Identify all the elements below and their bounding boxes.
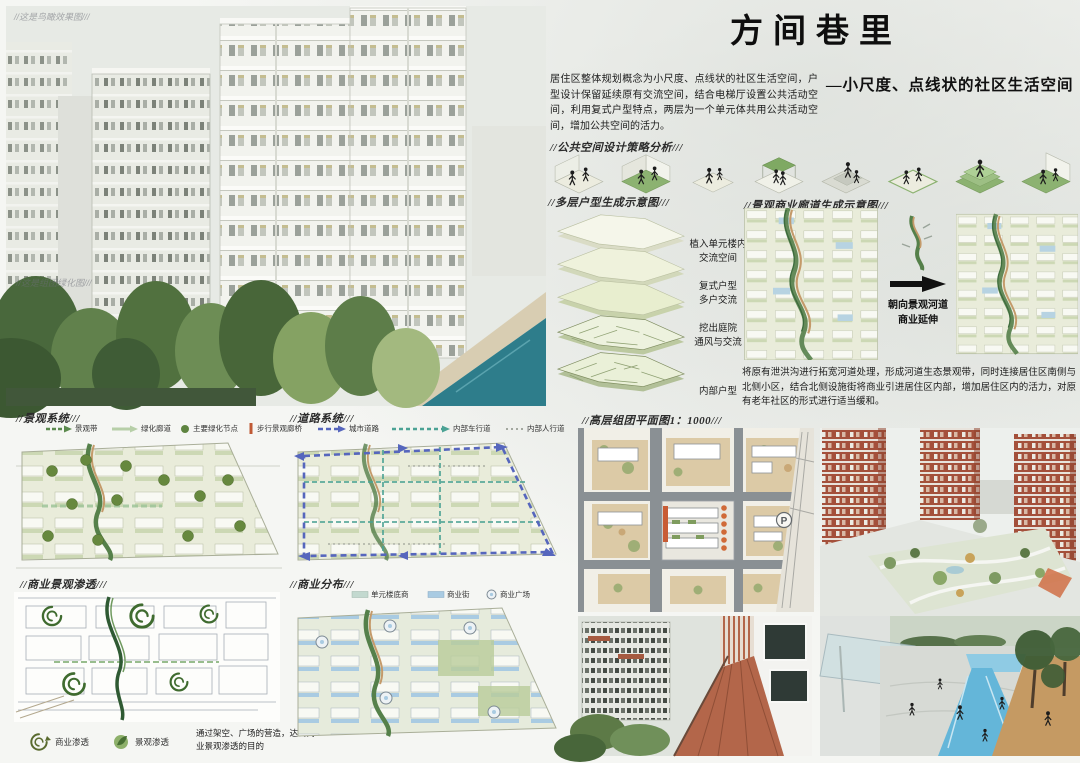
- landscape-bridge-icon: [248, 423, 254, 434]
- landscape-infiltration-icon: [112, 733, 132, 751]
- legend-internal-vehicle-road: 内部车行道: [392, 423, 491, 434]
- hero-render: [6, 6, 546, 406]
- legend-city-road: 城市道路: [318, 423, 379, 434]
- strategy-green-roof-pavilion-icon: [748, 150, 811, 192]
- strategy-walkway-icon: [682, 150, 745, 192]
- commercial-distribution-plan: [288, 600, 568, 750]
- section-header-infiltration: //商业景观渗透///: [20, 576, 107, 592]
- corridor-plan-before: [742, 208, 880, 360]
- highrise-cluster-plan: P: [578, 428, 814, 612]
- corridor-note-text: 朝向景观河道商业延伸: [888, 298, 948, 328]
- parking-symbol: P: [781, 516, 788, 527]
- water-channel-render: [820, 616, 1080, 756]
- commercial-plaza-icon: [486, 589, 497, 600]
- green-node-icon: [180, 424, 190, 434]
- internal-vehicle-road-icon: [392, 425, 450, 433]
- road-system-plan: [288, 436, 570, 574]
- unit-label-2: 复式户型多户交流: [688, 280, 748, 309]
- presentation-board: //这是鸟瞰效果图/// //这是组团绿化图/// 方间巷里 居住区整体规划概念…: [0, 0, 1080, 763]
- legend-landscape-bridge: 步行景观廊桥: [248, 423, 302, 434]
- page-subtitle: —小尺度、点线状的社区生活空间: [826, 76, 1078, 96]
- strategy-elevated-platform-icon: [548, 150, 611, 192]
- legend-landscape-infiltration: 景观渗透: [112, 733, 169, 751]
- unit-label-1: 植入单元楼内交流空间: [688, 238, 748, 267]
- internal-pedestrian-path-icon: [506, 425, 524, 433]
- legend-internal-pedestrian-path: 内部人行道: [506, 423, 565, 434]
- section-header-distribution: //商业分布///: [290, 576, 354, 592]
- legend-commercial-street: 商业街: [428, 589, 470, 600]
- infiltration-plan: [14, 592, 280, 722]
- strategy-seating-platform-icon: [882, 150, 945, 192]
- legend-commercial-plaza: 商业广场: [486, 589, 530, 600]
- landscape-belt-icon: [46, 425, 72, 433]
- page-title: 方间巷里: [556, 4, 1076, 52]
- legend-unit-base-commercial: 单元楼底商: [352, 589, 409, 600]
- courtyard-render: [820, 428, 1080, 616]
- arrow-right-icon: [890, 276, 946, 292]
- corridor-plan-after: [956, 208, 1078, 360]
- legend-green-node: 主要绿化节点: [180, 423, 238, 434]
- landscape-system-plan: [12, 436, 284, 574]
- strategy-stepped-deck-icon: [815, 150, 878, 192]
- unit-label-4: 内部户型: [688, 385, 748, 399]
- river-paragraph: 将原有泄洪沟进行拓宽河道处理，形成河道生态景观带，同时连接居住区南侧与北侧小区，…: [742, 366, 1076, 410]
- river-ribbon-icon: [898, 214, 938, 270]
- strategy-diagram-row: [548, 150, 1078, 192]
- unit-generation-diagram: [548, 208, 693, 406]
- legend-green-corridor: 绿化廊道: [112, 423, 171, 434]
- strategy-green-room-icon: [615, 150, 678, 192]
- strategy-terraced-green-icon: [949, 150, 1012, 192]
- intro-paragraph: 居住区整体规划概念为小尺度、点线状的社区生活空间，户型设计保留延续原有交流空间，…: [550, 72, 818, 134]
- commercial-infiltration-icon: [30, 733, 52, 751]
- watermark-note-2: //这是组团绿化图///: [16, 276, 92, 289]
- unit-label-3: 挖出庭院通风与交流: [688, 322, 748, 351]
- commercial-street-icon: [428, 591, 444, 598]
- balcony-view-render: [578, 616, 812, 756]
- section-header-highrise: //高层组团平面图1：1000///: [582, 412, 722, 428]
- strategy-wall-niche-icon: [1015, 150, 1078, 192]
- watermark-note: //这是鸟瞰效果图///: [14, 10, 90, 23]
- legend-landscape-belt: 景观带: [46, 423, 98, 434]
- city-road-icon: [318, 425, 346, 433]
- legend-commercial-infiltration: 商业渗透: [30, 733, 89, 751]
- corridor-annotation: 朝向景观河道商业延伸: [882, 214, 954, 328]
- green-corridor-icon: [112, 425, 138, 433]
- unit-base-commercial-icon: [352, 591, 368, 598]
